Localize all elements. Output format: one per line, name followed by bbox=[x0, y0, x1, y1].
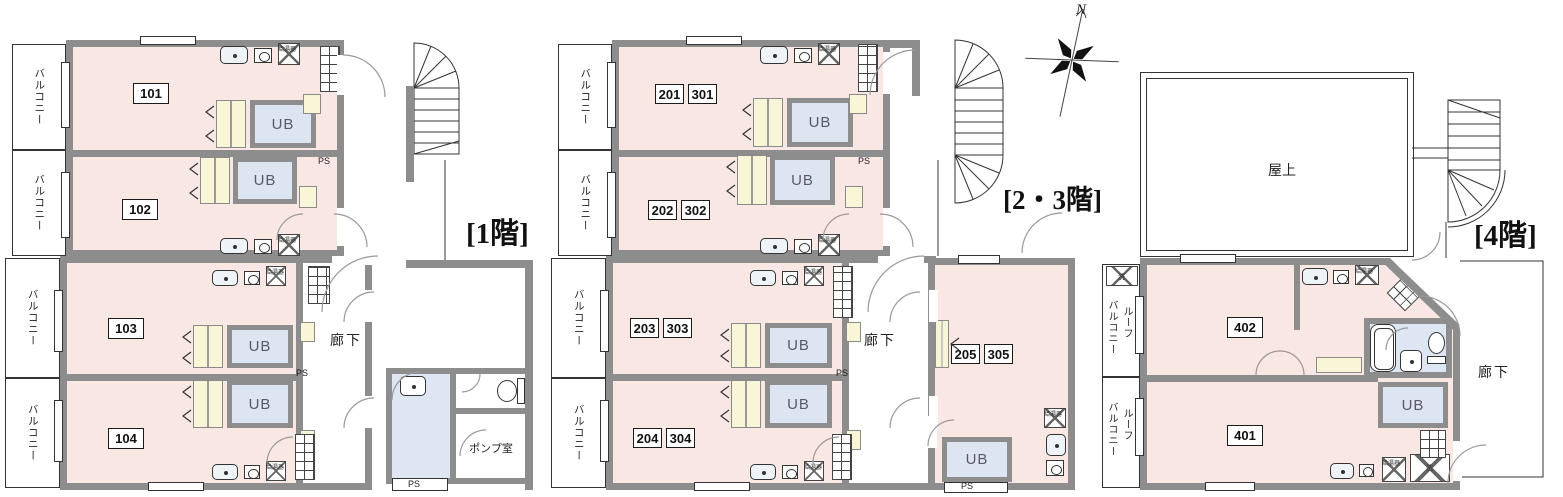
balcony-103: バルコニー bbox=[5, 258, 60, 378]
unit-205-label: 205 bbox=[951, 344, 980, 364]
floor23-title: [2・3階] bbox=[1003, 178, 1102, 217]
floor1-title: [1階] bbox=[466, 210, 529, 252]
unit-401-label: 401 bbox=[1227, 425, 1263, 446]
roof-label: ルーフ bbox=[1121, 408, 1131, 441]
water-heater-label: 給湯器 bbox=[1382, 458, 1400, 467]
ps-label: PS bbox=[961, 481, 973, 491]
balcony-204: バルコニー bbox=[551, 378, 606, 488]
water-heater-label: 給湯器 bbox=[278, 235, 296, 244]
ps-box-205 bbox=[944, 482, 1008, 493]
balcony-102: バルコニー bbox=[12, 150, 66, 256]
water-heater-label: 給湯器 bbox=[804, 462, 822, 471]
window bbox=[61, 62, 70, 128]
ub-102: UB bbox=[233, 157, 297, 204]
staircase-f1 bbox=[414, 43, 459, 260]
unit-number: 302 bbox=[685, 203, 707, 218]
rooftop-label: 屋上 bbox=[1252, 160, 1312, 180]
balcony-label: バルコニー bbox=[34, 174, 45, 232]
closet-102 bbox=[200, 157, 230, 204]
ub-401: UB bbox=[1378, 382, 1448, 428]
water-heater-label: 給湯器 bbox=[818, 44, 836, 53]
wall-402-kitchen bbox=[1294, 264, 1300, 330]
ps-label: PS bbox=[408, 479, 420, 489]
ub-label: UB bbox=[1402, 397, 1425, 414]
window bbox=[54, 400, 63, 462]
storage-box bbox=[299, 186, 317, 208]
washbasin-icon bbox=[400, 376, 426, 396]
balcony-203: バルコニー bbox=[551, 258, 606, 378]
closet-205 bbox=[935, 320, 949, 368]
closet-201 bbox=[753, 98, 783, 147]
ub-204: UB bbox=[765, 380, 832, 428]
stove-204 bbox=[782, 465, 798, 479]
unit-number: 204 bbox=[637, 431, 659, 446]
unit-302-label: 302 bbox=[681, 200, 710, 220]
entry-tile-201 bbox=[858, 44, 878, 92]
ub-label: UB bbox=[787, 337, 810, 354]
closet-203 bbox=[731, 323, 761, 368]
toilet-tank-icon bbox=[1427, 356, 1446, 364]
ub-label: UB bbox=[272, 116, 295, 133]
closet-101 bbox=[216, 100, 246, 148]
stove-102 bbox=[254, 239, 272, 254]
ub-label: UB bbox=[254, 172, 277, 189]
balcony-104: バルコニー bbox=[5, 378, 60, 488]
ub-label: UB bbox=[966, 451, 989, 468]
balcony-label: バルコニー bbox=[573, 289, 584, 347]
ub-label: UB bbox=[809, 114, 832, 131]
balcony-label: バルコニー bbox=[27, 289, 38, 347]
kitchen-sink-104 bbox=[212, 464, 238, 480]
door-gap bbox=[365, 290, 374, 322]
storage-box bbox=[845, 186, 863, 208]
unit-203-label: 203 bbox=[630, 318, 659, 338]
window bbox=[1205, 482, 1255, 491]
entry-tile-203 bbox=[833, 266, 853, 318]
unit-number: 401 bbox=[1234, 428, 1256, 443]
compass-icon bbox=[1015, 0, 1128, 126]
balcony-label: バルコニー bbox=[580, 174, 591, 232]
door-gap bbox=[929, 290, 938, 322]
unit-number: 104 bbox=[115, 431, 137, 446]
stove-401 bbox=[1359, 464, 1374, 477]
unit-303-label: 303 bbox=[663, 318, 692, 338]
kitchen-sink-102 bbox=[220, 238, 248, 254]
door-gap bbox=[365, 396, 374, 428]
water-heater-label: 給湯器 bbox=[1355, 266, 1373, 275]
ub-103: UB bbox=[227, 325, 293, 368]
window bbox=[1135, 296, 1144, 354]
balcony-101: バルコニー bbox=[12, 44, 66, 150]
block-201-202 bbox=[612, 40, 890, 257]
ps-label: PS bbox=[296, 368, 308, 378]
window bbox=[600, 400, 609, 462]
unit-103-label: 103 bbox=[108, 318, 144, 339]
closet-202 bbox=[737, 155, 767, 205]
unit-204-label: 204 bbox=[633, 428, 662, 448]
corridor-label-f23: 廊下 bbox=[864, 330, 896, 350]
unit-305-label: 305 bbox=[984, 344, 1013, 364]
kitchen-sink-205 bbox=[1046, 434, 1066, 456]
entry-tile-204 bbox=[832, 434, 852, 480]
door-gap bbox=[883, 52, 892, 94]
unit-number: 303 bbox=[667, 321, 689, 336]
window bbox=[686, 36, 742, 45]
pump-room-label: ポンプ室 bbox=[456, 440, 526, 456]
window bbox=[1135, 398, 1144, 456]
unit-number: 205 bbox=[955, 347, 977, 362]
entry-tile-401 bbox=[1420, 430, 1446, 458]
entry-tile-103 bbox=[308, 266, 330, 304]
ps-label: PS bbox=[836, 368, 848, 378]
window bbox=[600, 290, 609, 352]
window bbox=[958, 255, 1000, 264]
kitchen-sink-204 bbox=[750, 464, 776, 480]
unit-201-label: 201 bbox=[655, 84, 684, 104]
floor4-title: [4階] bbox=[1474, 212, 1537, 254]
door-gap bbox=[878, 256, 924, 265]
door-gap bbox=[928, 416, 937, 448]
balcony-label: バルコニー bbox=[573, 404, 584, 462]
unit-102-label: 102 bbox=[122, 199, 158, 220]
unit-number: 102 bbox=[129, 202, 151, 217]
water-heater-label: 給湯器 bbox=[1044, 409, 1062, 418]
window bbox=[1180, 254, 1236, 263]
storage-box bbox=[846, 322, 861, 342]
kitchen-sink-101 bbox=[220, 46, 248, 64]
wall-101-102-divider bbox=[66, 150, 344, 157]
storage-box bbox=[849, 94, 867, 114]
unit-301-label: 301 bbox=[688, 84, 717, 104]
ub-202: UB bbox=[770, 155, 835, 205]
roof-label: ルーフ bbox=[1121, 306, 1131, 339]
stove-101 bbox=[254, 48, 272, 63]
closet-104 bbox=[193, 380, 223, 428]
water-heater-label: 給湯器 bbox=[278, 44, 296, 53]
stove-203 bbox=[782, 271, 798, 285]
washbasin-icon bbox=[1400, 350, 1422, 372]
storage-shelf-402 bbox=[1316, 357, 1362, 373]
unit-402-label: 402 bbox=[1227, 317, 1263, 338]
window bbox=[694, 482, 750, 491]
entry-tile-104 bbox=[295, 434, 315, 480]
door-gap bbox=[883, 208, 892, 246]
kitchen-sink-202 bbox=[760, 238, 788, 254]
ub-205: UB bbox=[942, 437, 1012, 482]
window bbox=[148, 482, 204, 491]
kitchen-sink-103 bbox=[212, 270, 238, 286]
window bbox=[54, 290, 63, 352]
ub-label: UB bbox=[787, 396, 810, 413]
staircase-f23 bbox=[938, 40, 1003, 256]
corridor-label-f1: 廊下 bbox=[330, 330, 362, 350]
balcony-label: バルコニー bbox=[34, 68, 45, 126]
roof-balcony-label: バルコニー bbox=[1106, 300, 1116, 355]
stove-205 bbox=[1046, 460, 1064, 476]
water-heater-label: 給湯器 bbox=[818, 235, 836, 244]
laundry-label: 洗 bbox=[1426, 463, 1433, 473]
bathtub-icon bbox=[1370, 324, 1396, 372]
door-gap bbox=[337, 55, 346, 95]
block-101-102 bbox=[66, 40, 344, 257]
unit-number: 402 bbox=[1234, 320, 1256, 335]
unit-number: 304 bbox=[670, 431, 692, 446]
stove-104 bbox=[244, 465, 260, 479]
window bbox=[140, 36, 196, 45]
unit-number: 103 bbox=[115, 321, 137, 336]
closet-103 bbox=[193, 325, 223, 368]
window bbox=[607, 172, 616, 238]
water-heater-label: 給湯器 bbox=[266, 267, 284, 276]
compass-north-label: N bbox=[1076, 2, 1086, 19]
toilet-icon bbox=[1428, 332, 1445, 354]
ub-104: UB bbox=[227, 380, 293, 428]
floorplan-canvas: バルコニー バルコニー バルコニー バルコニー UB UB UB UB 給湯器 bbox=[0, 0, 1563, 497]
unit-number: 101 bbox=[140, 86, 162, 101]
water-heater-label: 給湯器 bbox=[266, 462, 284, 471]
closet-204 bbox=[731, 380, 761, 428]
unit-101-label: 101 bbox=[133, 83, 169, 104]
ub-label: UB bbox=[249, 338, 272, 355]
roof-balcony-label: バルコニー bbox=[1106, 402, 1116, 457]
unit-104-label: 104 bbox=[108, 428, 144, 449]
door-gap bbox=[332, 256, 378, 265]
kitchen-sink-402 bbox=[1302, 268, 1328, 285]
door-gap bbox=[337, 208, 346, 246]
ub-label: UB bbox=[791, 172, 814, 189]
kitchen-sink-401 bbox=[1330, 463, 1354, 479]
unit-202-label: 202 bbox=[648, 200, 677, 220]
stove-201 bbox=[794, 48, 812, 63]
water-heater-label: 給湯器 bbox=[804, 267, 822, 276]
ps-label: PS bbox=[318, 156, 330, 166]
stove-202 bbox=[794, 239, 812, 254]
corridor-area-f23 bbox=[849, 263, 929, 483]
balcony-label: バルコニー bbox=[27, 404, 38, 462]
unit-304-label: 304 bbox=[666, 428, 695, 448]
ub-201: UB bbox=[787, 98, 853, 147]
ps-label: PS bbox=[858, 156, 870, 166]
balcony-label: バルコニー bbox=[580, 68, 591, 126]
corridor-label-f4: 廊下 bbox=[1478, 362, 1510, 382]
unit-number: 202 bbox=[652, 203, 674, 218]
toilet-icon bbox=[497, 380, 517, 402]
stove-103 bbox=[244, 271, 260, 285]
door-gap bbox=[1453, 441, 1462, 481]
window bbox=[61, 172, 70, 238]
laundry-label: 洗 bbox=[1118, 272, 1125, 282]
ub-203: UB bbox=[765, 323, 832, 368]
balcony-201: バルコニー bbox=[558, 44, 612, 150]
storage-box bbox=[300, 322, 315, 342]
kitchen-sink-201 bbox=[760, 46, 788, 64]
storage-box bbox=[303, 94, 321, 114]
stove-402 bbox=[1333, 270, 1349, 284]
window bbox=[607, 62, 616, 128]
kitchen-sink-203 bbox=[750, 270, 776, 286]
ub-label: UB bbox=[249, 396, 272, 413]
unit-number: 201 bbox=[659, 87, 681, 102]
balcony-202: バルコニー bbox=[558, 150, 612, 256]
unit-number: 305 bbox=[988, 347, 1010, 362]
wall-401-402-divider bbox=[1147, 375, 1378, 382]
unit-number: 301 bbox=[692, 87, 714, 102]
unit-number: 203 bbox=[634, 321, 656, 336]
toilet-tank-icon bbox=[517, 378, 525, 404]
